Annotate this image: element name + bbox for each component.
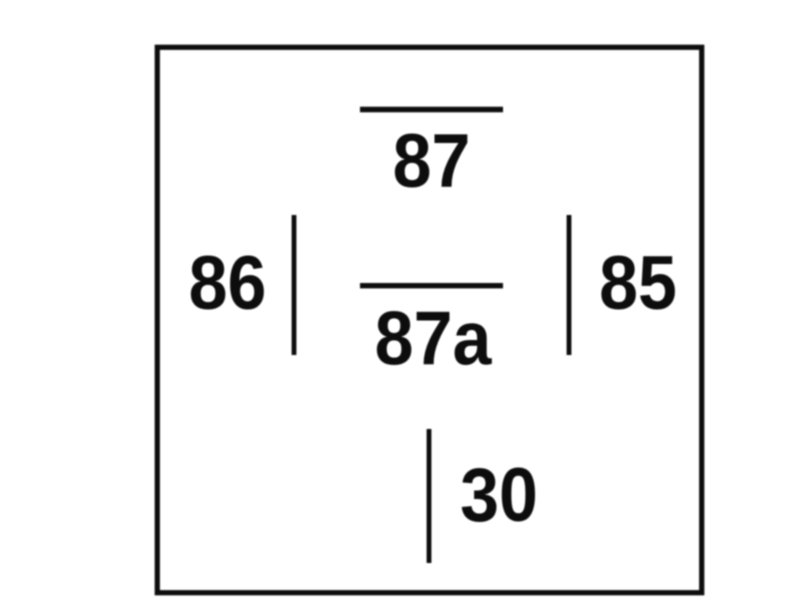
- svg-text:30: 30: [460, 453, 538, 537]
- svg-text:87: 87: [393, 119, 471, 203]
- svg-text:87a: 87a: [375, 297, 493, 381]
- svg-text:86: 86: [189, 241, 267, 325]
- svg-text:85: 85: [599, 241, 677, 325]
